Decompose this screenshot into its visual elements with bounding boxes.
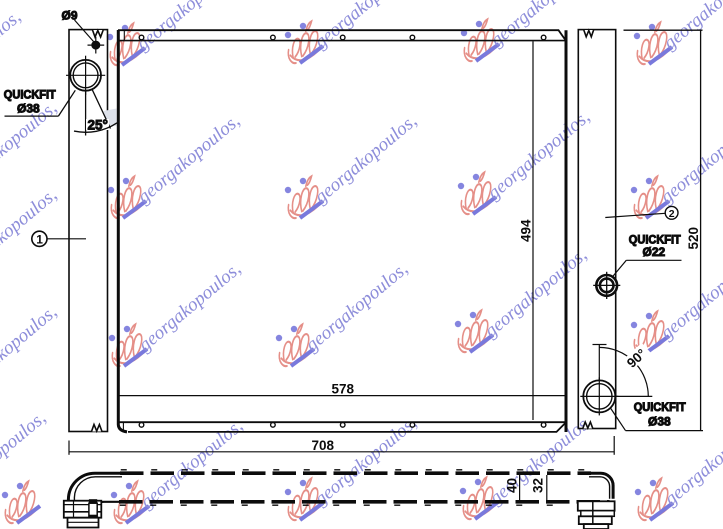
svg-text:494: 494 bbox=[518, 219, 533, 242]
svg-text:578: 578 bbox=[332, 381, 355, 396]
svg-text:Ø38: Ø38 bbox=[648, 415, 671, 429]
svg-text:32: 32 bbox=[531, 478, 546, 493]
svg-text:Ø9: Ø9 bbox=[62, 9, 78, 23]
svg-text:708: 708 bbox=[312, 438, 335, 453]
svg-text:QUICKFIT: QUICKFIT bbox=[4, 89, 56, 101]
svg-text:2: 2 bbox=[669, 208, 675, 220]
svg-text:40: 40 bbox=[505, 478, 520, 493]
svg-text:520: 520 bbox=[686, 227, 701, 250]
svg-text:QUICKFIT: QUICKFIT bbox=[634, 402, 686, 414]
svg-text:Ø38: Ø38 bbox=[17, 102, 40, 116]
svg-text:Ø22: Ø22 bbox=[643, 245, 666, 259]
svg-text:25°: 25° bbox=[88, 118, 108, 133]
svg-text:1: 1 bbox=[36, 232, 43, 246]
